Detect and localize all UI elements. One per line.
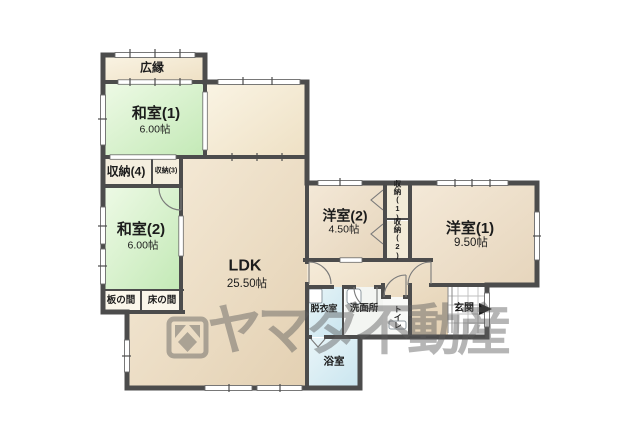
room-label-shuno2: 収納(2) [393,218,401,260]
room-size-ldk: 25.50帖 [227,278,267,290]
room-label-washitsu1: 和室(1) [132,106,180,122]
room-label-genkan: 玄関 [454,304,474,315]
room-label-yoshitsu2: 洋室(2) [322,209,367,224]
room-label-ldk: LDK [229,259,262,276]
room-size-washitsu1: 6.00帖 [140,124,171,135]
room-label-shuno3: 収納(3) [155,167,178,174]
room-label-toire: トイレ [393,305,401,329]
room-area-dining [205,82,307,157]
washer-icon [309,289,322,303]
floorplan: 広縁 和室(1) 6.00帖 収納(4) 収納(3) 和室(2) 6.00帖 板… [0,0,640,445]
room-label-yoshitsu1: 洋室(1) [446,221,494,237]
room-label-shuno1: 収納(1) [393,180,401,222]
room-label-itanoma: 板の間 [107,296,136,306]
room-size-yoshitsu2: 4.50帖 [329,224,360,235]
room-label-tokonoma: 床の間 [148,296,177,306]
room-label-datsuishitsu: 脱衣室 [310,304,337,313]
room-size-washitsu2: 6.00帖 [128,240,159,251]
room-label-hiroen: 広縁 [140,62,164,75]
room-label-shuno4: 収納(4) [107,166,146,179]
room-size-yoshitsu1: 9.50帖 [454,237,488,249]
room-label-washitsu2: 和室(2) [117,222,165,238]
room-label-yokushitsu: 浴室 [324,356,345,367]
room-label-senmenjo: 洗面所 [350,304,379,314]
floorplan-drawing [0,0,640,445]
